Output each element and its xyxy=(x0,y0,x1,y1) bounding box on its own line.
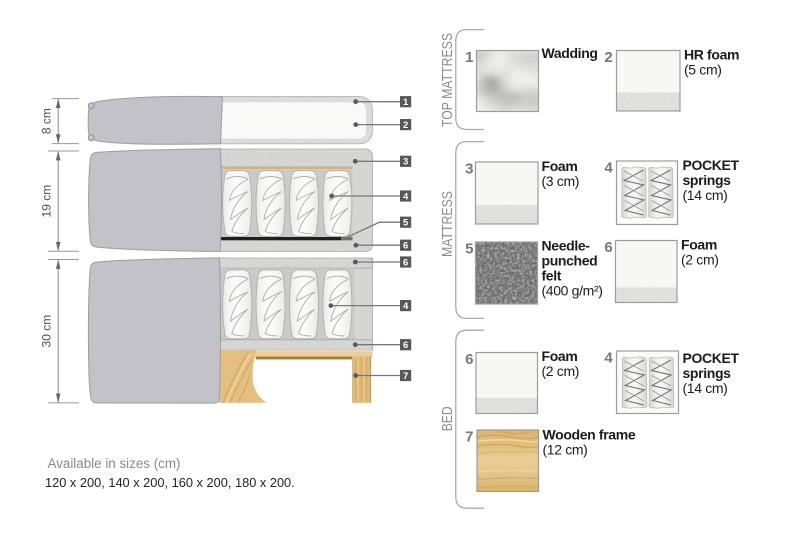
svg-text:3: 3 xyxy=(465,161,473,178)
svg-text:MATTRESS: MATTRESS xyxy=(439,191,456,257)
svg-text:Foam: Foam xyxy=(681,237,717,253)
svg-text:120 x 200, 140 x 200, 160 x 20: 120 x 200, 140 x 200, 160 x 200, 180 x 2… xyxy=(45,475,295,490)
svg-text:2: 2 xyxy=(403,120,408,131)
svg-text:Wooden frame: Wooden frame xyxy=(543,427,636,443)
svg-text:Available in sizes (cm): Available in sizes (cm) xyxy=(48,456,181,471)
svg-text:6: 6 xyxy=(403,241,408,252)
svg-text:1: 1 xyxy=(403,97,409,108)
svg-text:1: 1 xyxy=(465,49,473,66)
svg-text:POCKET: POCKET xyxy=(683,157,740,173)
svg-text:2: 2 xyxy=(604,49,612,66)
svg-text:(5 cm): (5 cm) xyxy=(684,62,722,78)
svg-text:4: 4 xyxy=(604,350,613,367)
svg-text:4: 4 xyxy=(403,301,409,312)
svg-text:felt: felt xyxy=(542,268,562,284)
svg-text:4: 4 xyxy=(403,191,409,202)
svg-text:(400 g/m²): (400 g/m²) xyxy=(542,283,603,299)
svg-text:6: 6 xyxy=(465,351,473,368)
svg-text:TOP MATTRESS: TOP MATTRESS xyxy=(439,33,456,127)
svg-text:7: 7 xyxy=(465,429,473,446)
svg-text:30 cm: 30 cm xyxy=(40,315,54,348)
svg-text:6: 6 xyxy=(403,340,408,351)
svg-text:POCKET: POCKET xyxy=(683,350,740,366)
svg-text:(14 cm): (14 cm) xyxy=(683,380,728,396)
svg-text:8 cm: 8 cm xyxy=(40,108,54,134)
svg-text:3: 3 xyxy=(403,157,408,168)
svg-text:5: 5 xyxy=(465,241,473,258)
svg-text:(2 cm): (2 cm) xyxy=(542,363,580,379)
svg-text:Wadding: Wadding xyxy=(542,45,598,61)
svg-text:Foam: Foam xyxy=(542,158,578,174)
svg-text:(3 cm): (3 cm) xyxy=(542,173,580,189)
svg-text:6: 6 xyxy=(403,257,408,268)
svg-text:HR foam: HR foam xyxy=(684,47,739,63)
svg-text:7: 7 xyxy=(403,371,408,382)
svg-text:6: 6 xyxy=(604,239,612,256)
svg-text:punched: punched xyxy=(542,253,598,269)
svg-text:(2 cm): (2 cm) xyxy=(681,252,719,268)
svg-text:5: 5 xyxy=(403,218,409,229)
svg-text:Foam: Foam xyxy=(542,348,578,364)
svg-text:springs: springs xyxy=(683,365,732,381)
svg-text:4: 4 xyxy=(604,160,613,177)
svg-text:19 cm: 19 cm xyxy=(40,185,54,218)
svg-text:springs: springs xyxy=(683,172,732,188)
svg-text:(14 cm): (14 cm) xyxy=(683,187,728,203)
svg-text:BED: BED xyxy=(439,406,456,431)
svg-text:Needle-: Needle- xyxy=(542,238,591,254)
svg-text:(12 cm): (12 cm) xyxy=(543,442,588,458)
